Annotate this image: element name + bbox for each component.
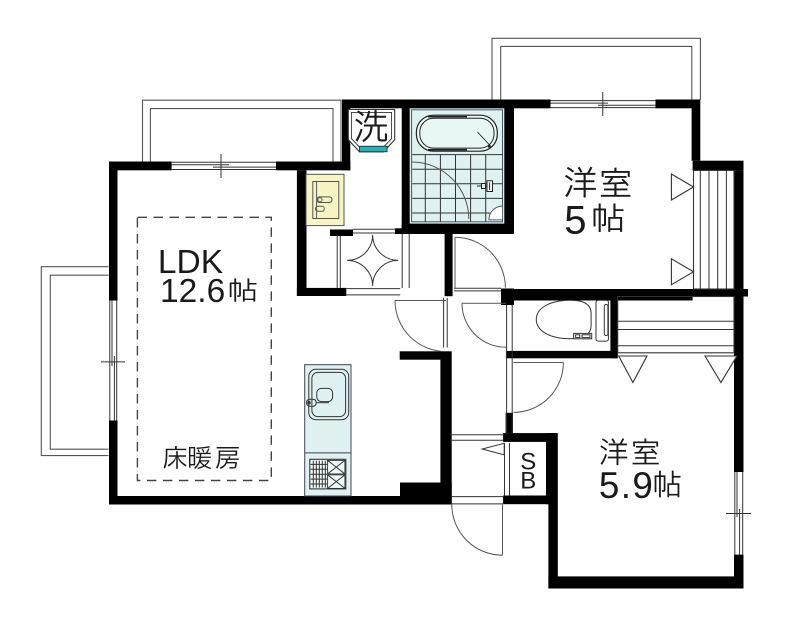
svg-text:5.9: 5.9 <box>599 465 654 506</box>
svg-text:B: B <box>520 468 536 495</box>
svg-text:12.6: 12.6 <box>160 273 225 310</box>
svg-text:5: 5 <box>564 199 586 243</box>
